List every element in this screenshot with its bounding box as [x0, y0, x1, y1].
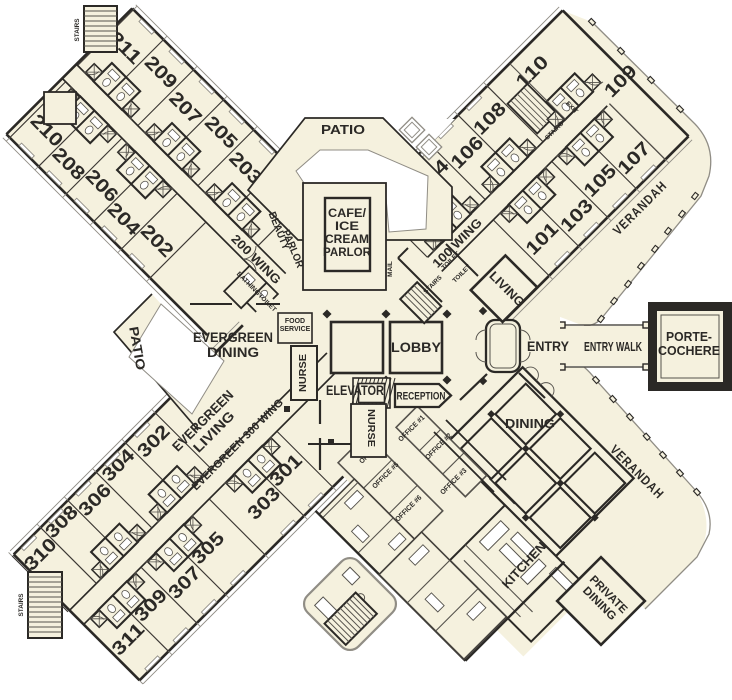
svg-text:EVERGREEN: EVERGREEN — [193, 330, 273, 345]
svg-text:RECEPTION: RECEPTION — [397, 391, 446, 403]
svg-text:SERVICE: SERVICE — [280, 326, 311, 333]
svg-text:COCHERE: COCHERE — [658, 344, 720, 358]
svg-text:LOBBY: LOBBY — [391, 339, 442, 355]
svg-text:PORTE-: PORTE- — [666, 330, 712, 344]
svg-text:CAFE/: CAFE/ — [328, 208, 367, 220]
svg-text:FOOD: FOOD — [285, 318, 305, 325]
svg-text:ENTRY: ENTRY — [527, 339, 569, 354]
svg-text:NURSE: NURSE — [365, 409, 377, 447]
svg-text:ENTRY WALK: ENTRY WALK — [584, 340, 642, 354]
svg-text:ICE: ICE — [335, 221, 359, 233]
svg-text:NURSE: NURSE — [297, 354, 309, 392]
svg-text:STAIRS: STAIRS — [74, 18, 81, 42]
svg-text:STAIRS: STAIRS — [18, 593, 25, 617]
svg-text:CREAM: CREAM — [325, 234, 369, 246]
svg-text:MAIL: MAIL — [387, 261, 394, 277]
svg-text:DINING: DINING — [505, 416, 555, 431]
svg-text:ELEVATOR: ELEVATOR — [326, 383, 384, 398]
svg-text:PARLOR: PARLOR — [323, 247, 372, 259]
svg-text:PATIO: PATIO — [321, 122, 365, 137]
svg-text:DINING: DINING — [207, 345, 259, 360]
